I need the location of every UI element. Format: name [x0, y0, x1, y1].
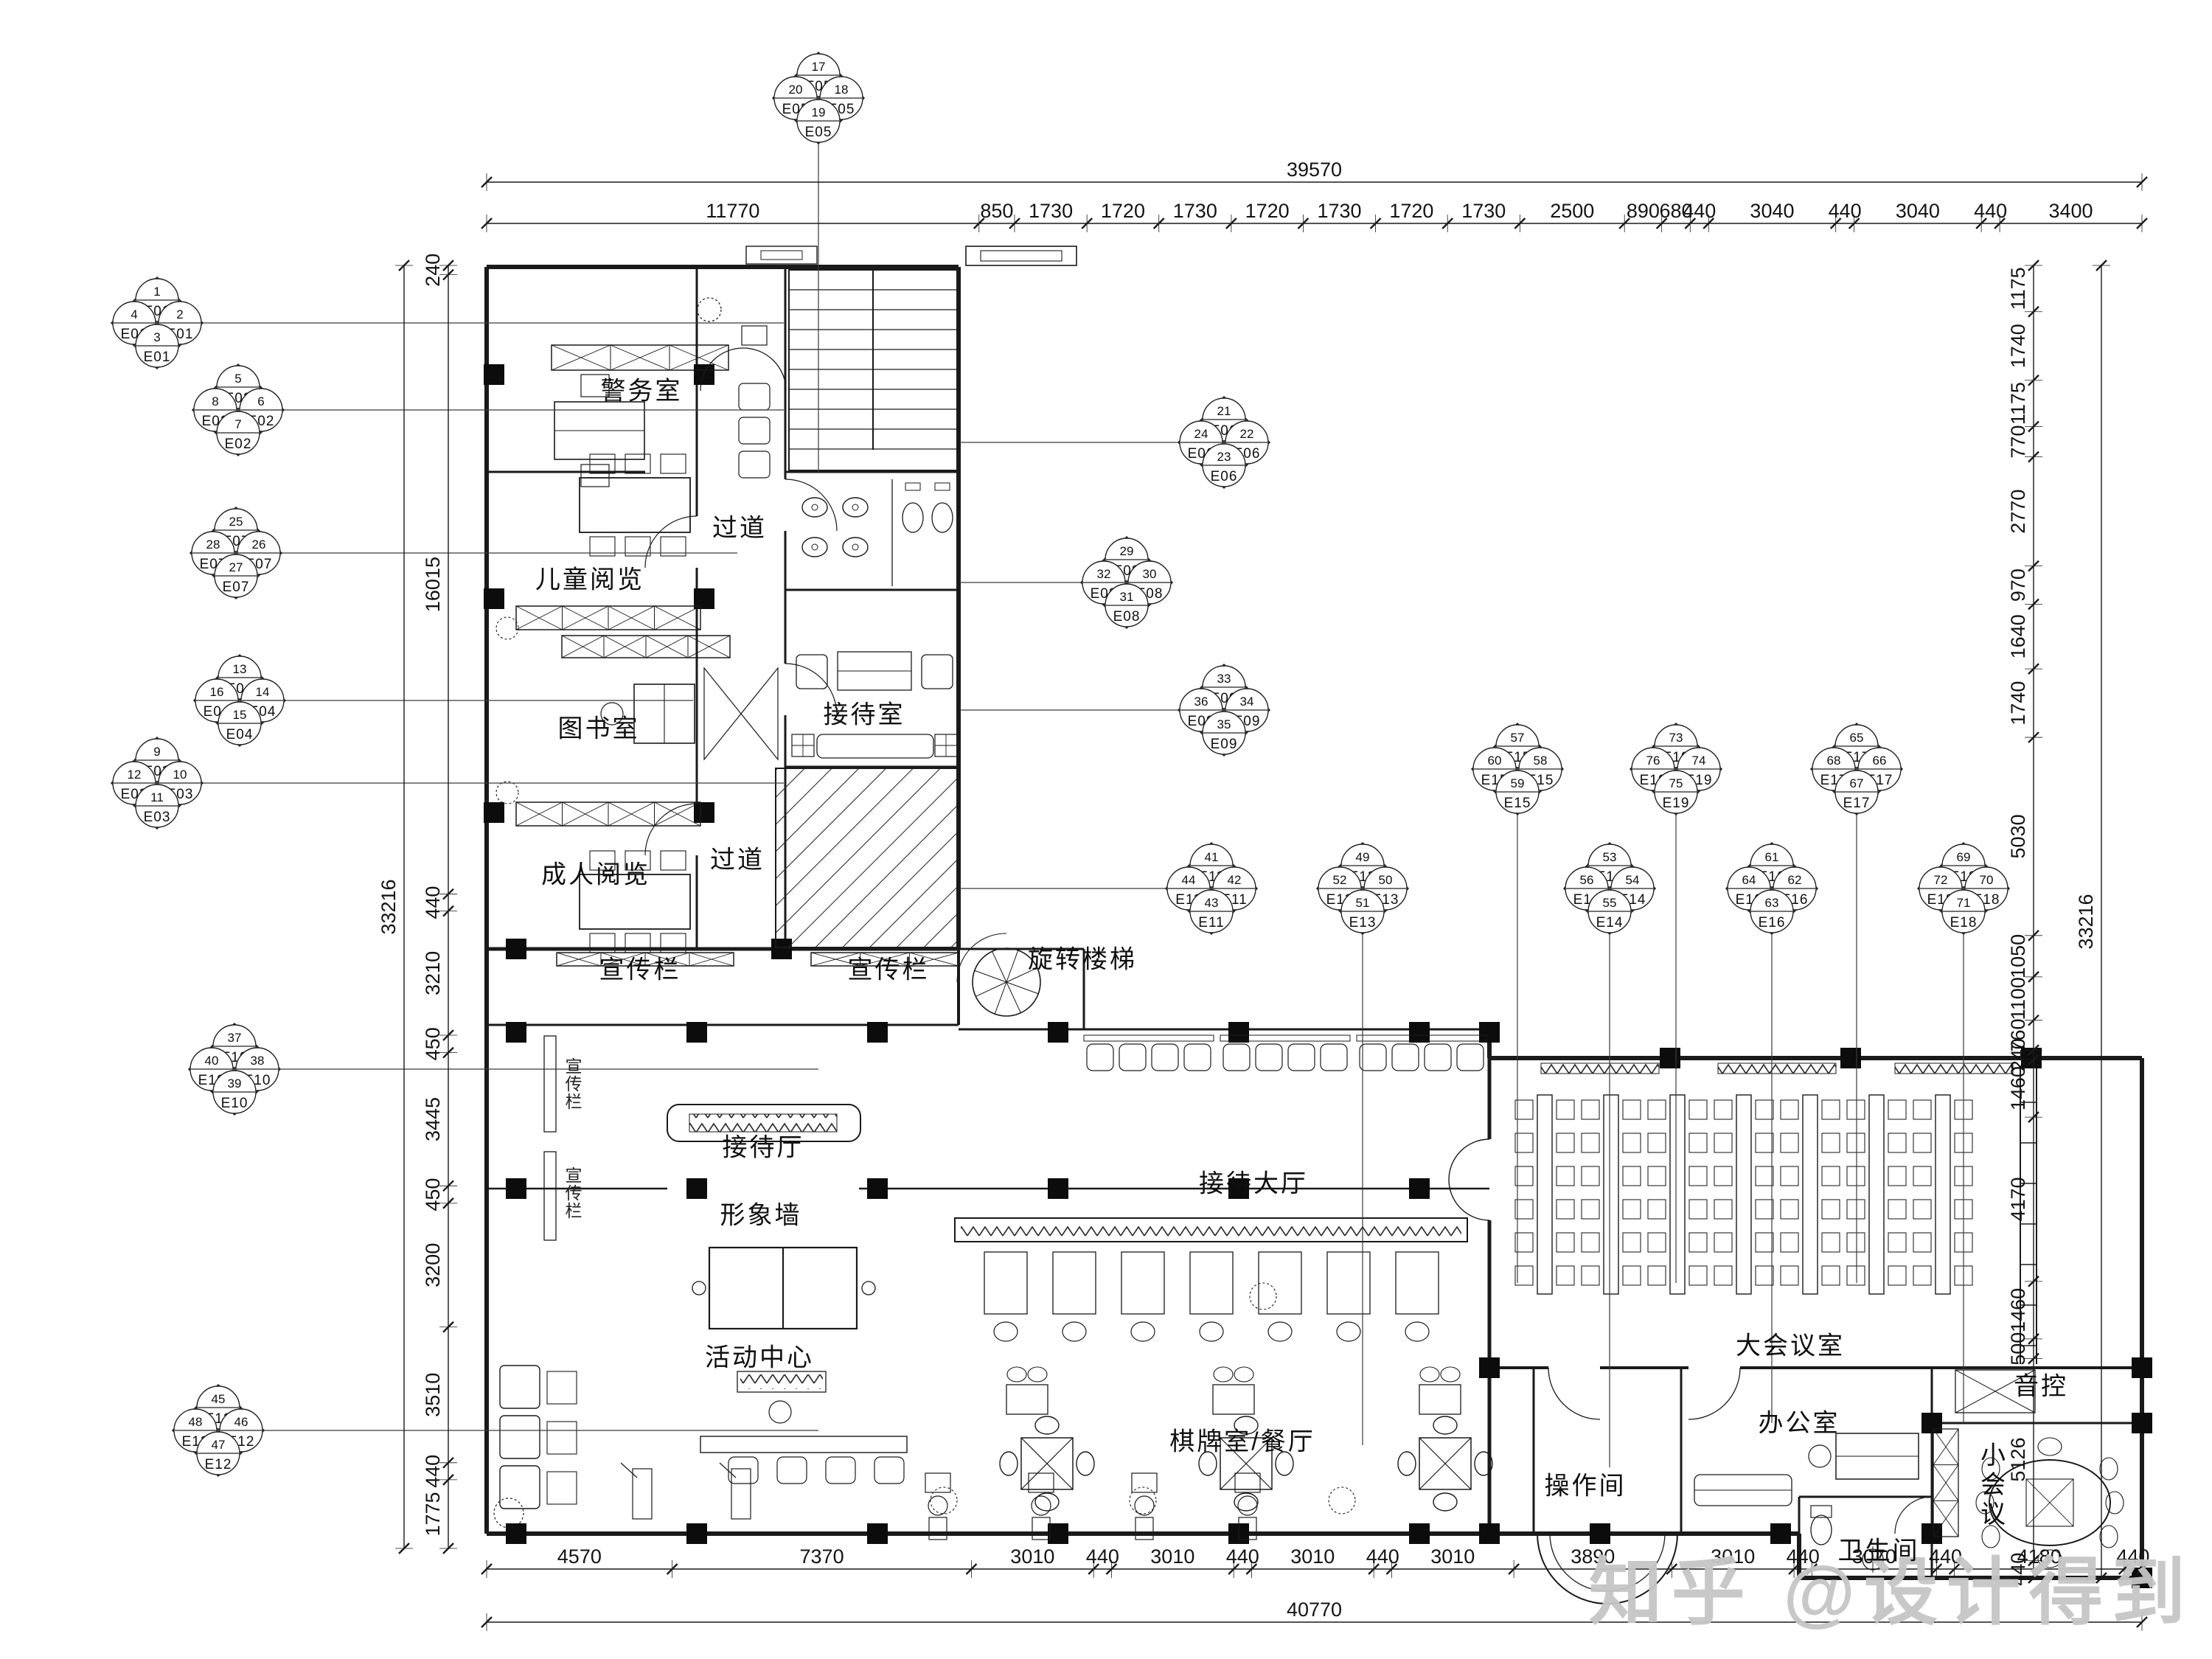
dim-left-2: 440: [422, 886, 444, 919]
dim-left-9: 440: [422, 1455, 444, 1488]
watermark: 知乎 @设计得到: [1589, 1532, 2194, 1639]
dim-bottom-overall-0: 40770: [1287, 1599, 1342, 1621]
dim-right-13: 1460: [2007, 1066, 2029, 1110]
floor-plan-drawing: 1177085017301720173017201730172017302500…: [0, 0, 2212, 1659]
dim-bottom-2: 3010: [1010, 1545, 1054, 1568]
dim-top-16: 440: [1974, 200, 2007, 222]
dim-right-0: 1175: [2007, 267, 2029, 310]
dim-right-4: 2770: [2007, 490, 2029, 534]
dim-bottom-5: 440: [1226, 1545, 1259, 1568]
dim-bottom-4: 3010: [1150, 1545, 1194, 1568]
dim-top-15: 3040: [1896, 200, 1940, 222]
dim-right-8: 5030: [2007, 814, 2029, 858]
dim-top-5: 1720: [1245, 200, 1290, 222]
dim-top-8: 1730: [1461, 200, 1506, 222]
dim-right-6: 1640: [2007, 614, 2029, 658]
dim-right-overall-0: 33216: [2075, 894, 2097, 949]
dim-bottom-8: 3010: [1430, 1545, 1475, 1568]
dim-right-14: 4170: [2007, 1177, 2029, 1221]
dim-left-4: 450: [422, 1027, 444, 1060]
dim-top-2: 1730: [1029, 200, 1073, 222]
dim-bottom-6: 3010: [1290, 1545, 1335, 1568]
dim-left-0: 240: [422, 254, 444, 287]
dim-top-10: 890: [1627, 200, 1660, 222]
dim-right-9: 1050: [2007, 934, 2029, 978]
dim-left-6: 450: [422, 1178, 444, 1211]
dim-left-1: 16015: [422, 557, 444, 612]
dim-top-12: 440: [1683, 200, 1716, 222]
dim-left-8: 3510: [422, 1373, 444, 1417]
dim-top-13: 3040: [1750, 200, 1794, 222]
dim-left-overall-0: 33216: [378, 879, 400, 934]
dim-top-0: 11770: [706, 200, 759, 222]
dim-right-1: 1740: [2007, 324, 2029, 368]
dim-right-16: 500: [2007, 1332, 2029, 1366]
dim-top-6: 1730: [1318, 200, 1362, 222]
dim-top-9: 2500: [1550, 200, 1594, 222]
dim-bottom-3: 440: [1086, 1545, 1119, 1568]
dim-bottom-7: 440: [1366, 1545, 1399, 1568]
dim-bottom-1: 7370: [800, 1545, 844, 1568]
dim-top-4: 1730: [1173, 200, 1217, 222]
dim-top-14: 440: [1829, 200, 1862, 222]
dim-left-7: 3200: [422, 1243, 444, 1287]
dim-right-7: 1740: [2007, 681, 2029, 726]
dimension-chains: 1177085017301720173017201730172017302500…: [378, 159, 2149, 1631]
dim-top-1: 850: [980, 200, 1013, 222]
dim-bottom-0: 4570: [557, 1545, 602, 1568]
dim-top-overall-0: 39570: [1287, 159, 1342, 181]
dim-right-5: 970: [2007, 568, 2029, 602]
dim-top-7: 1720: [1389, 200, 1433, 222]
dim-left-3: 3210: [422, 951, 444, 995]
dim-left-10: 1775: [422, 1492, 444, 1536]
dim-top-17: 3400: [2049, 200, 2093, 222]
dim-top-3: 1720: [1101, 200, 1145, 222]
dim-right-2: 1175: [2007, 382, 2029, 425]
floor-plan-sheet: 1177085017301720173017201730172017302500…: [0, 0, 2212, 1659]
dim-right-17: 5126: [2007, 1438, 2029, 1482]
dim-left-5: 3445: [422, 1097, 444, 1141]
dim-right-10: 1100: [2007, 977, 2029, 1020]
walls-and-furniture: [484, 246, 2152, 1604]
dim-right-15: 1460: [2007, 1288, 2029, 1332]
dim-right-3: 770: [2007, 425, 2029, 459]
